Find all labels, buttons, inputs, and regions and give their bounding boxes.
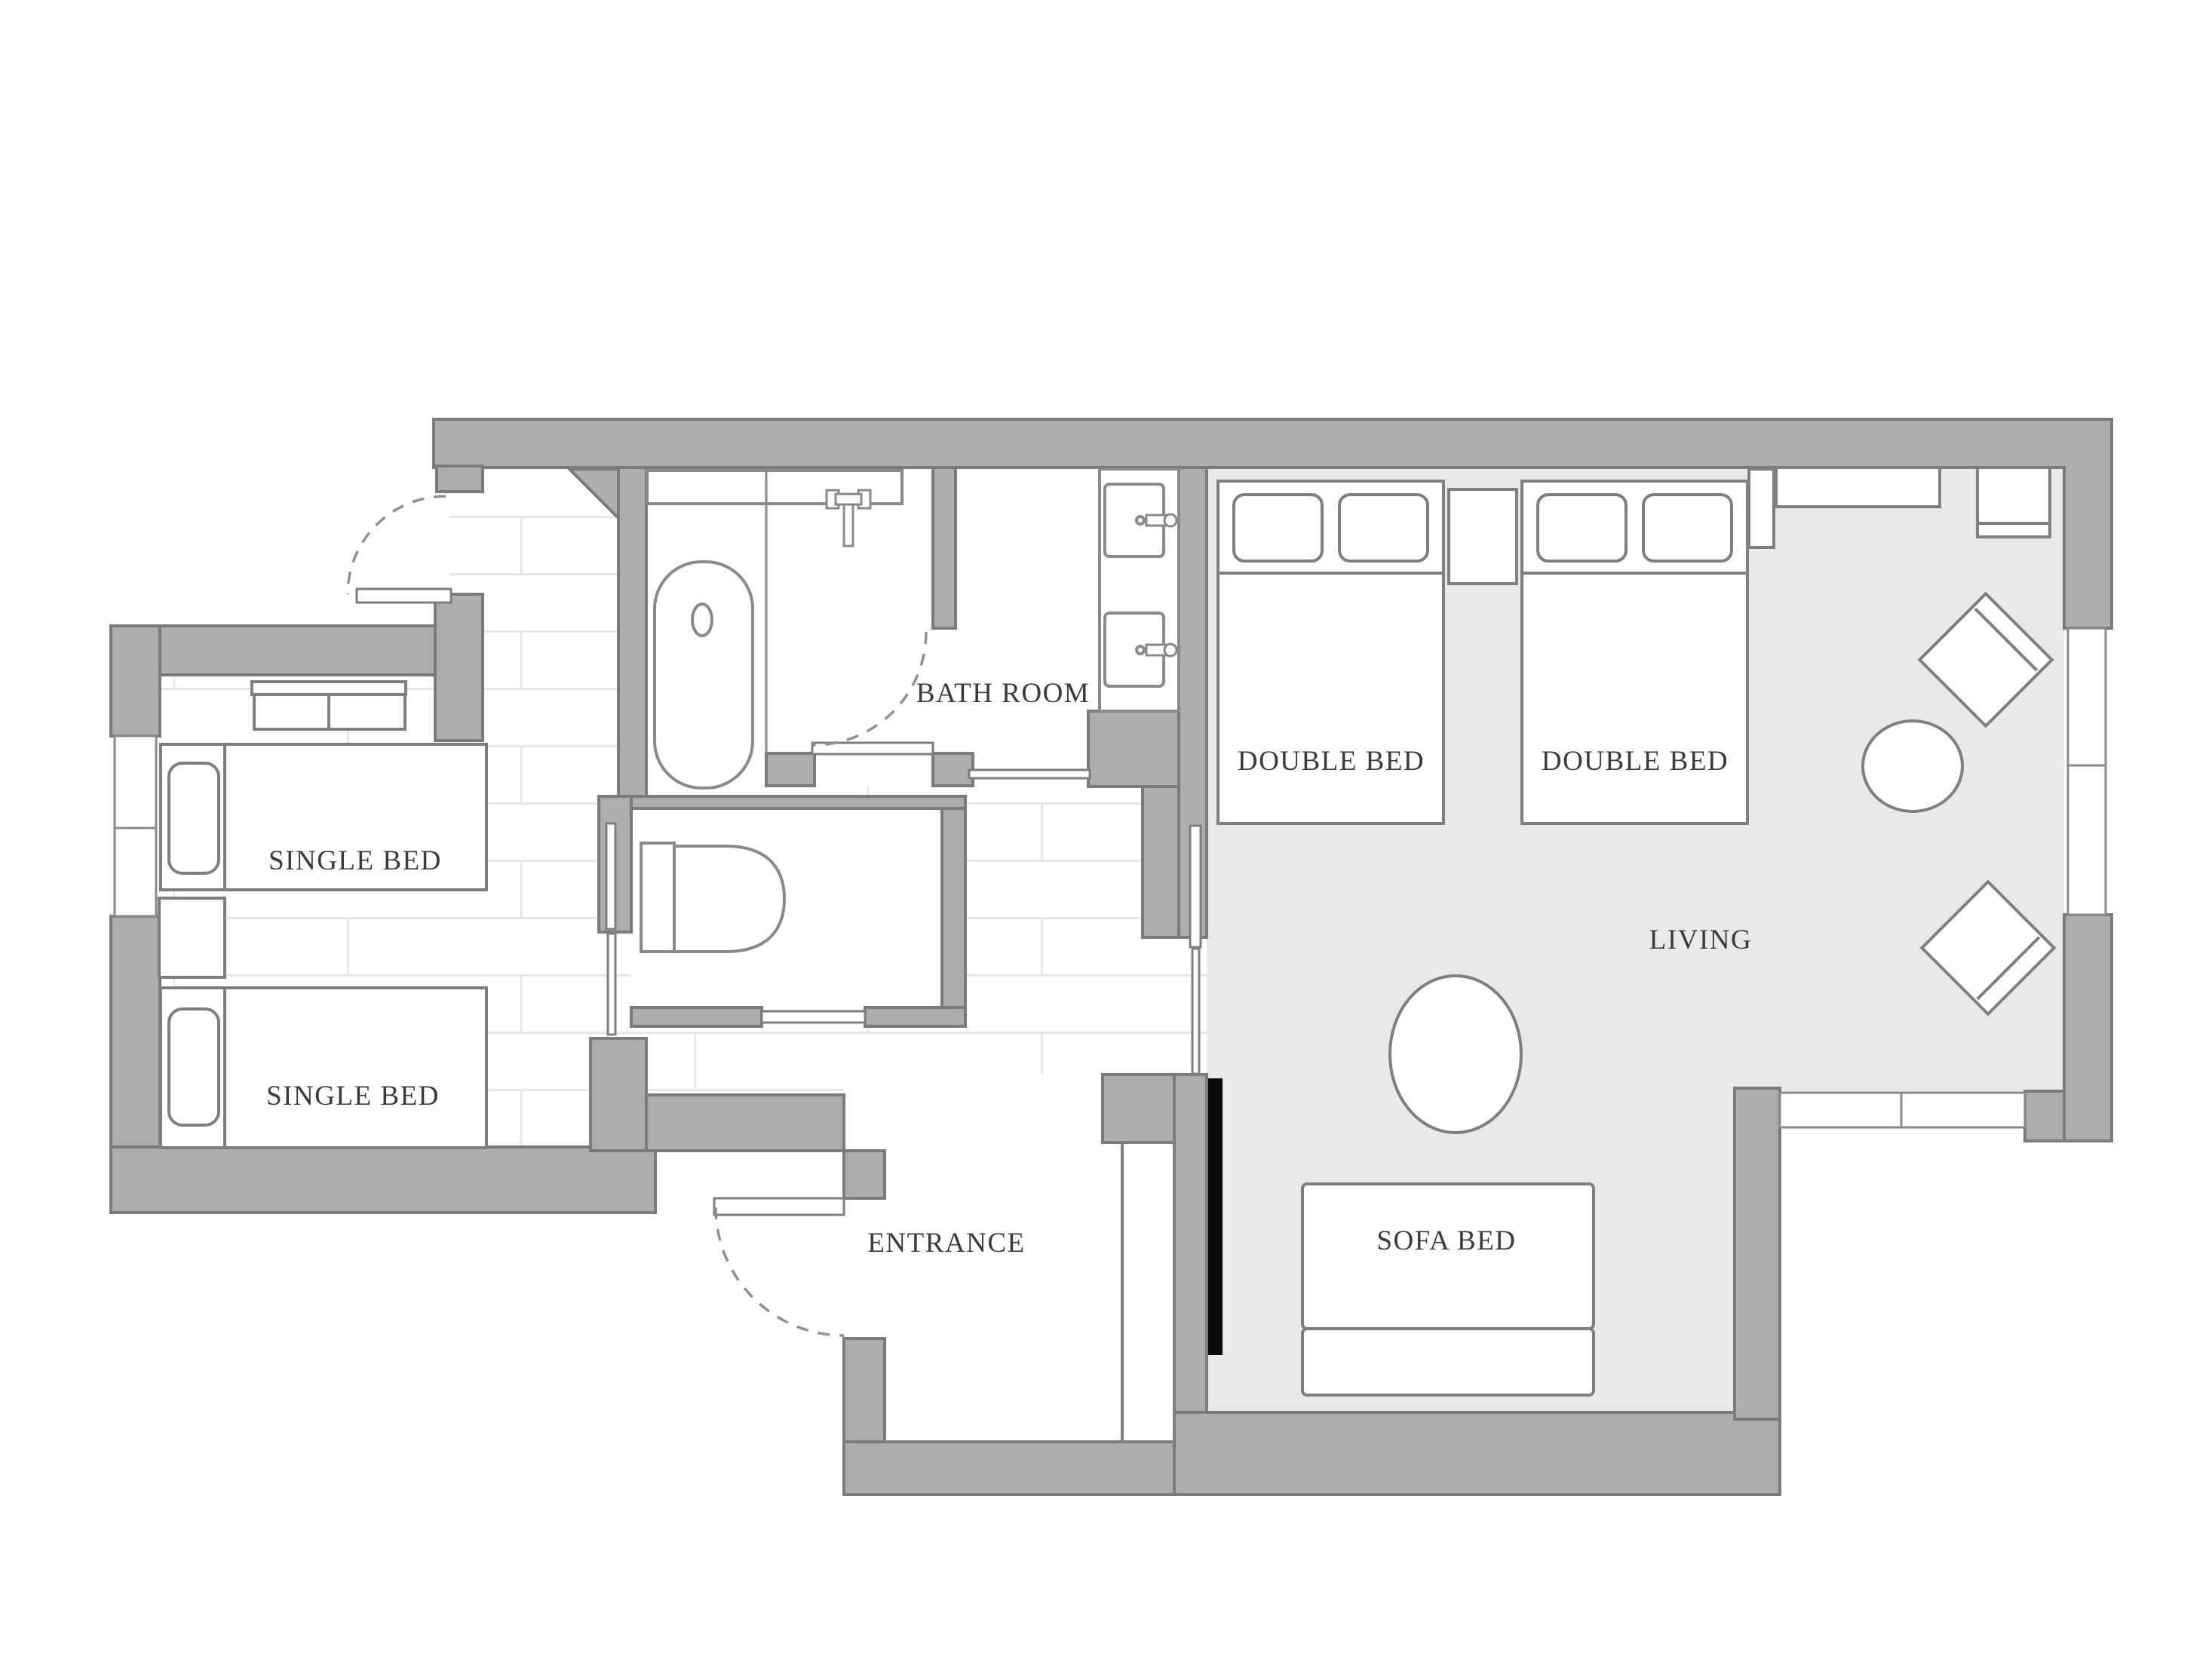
nightstand-right-of-bed [1749,469,1774,547]
wall-window-pier-right [2025,1091,2064,1141]
entry-door-leaf [357,589,451,603]
label-double-bed-1: DOUBLE BED [1238,746,1425,777]
floor-plan-page: SINGLE BED SINGLE BED BATH ROOM DOUBLE B… [0,0,2212,1659]
wall-right-lower-block [2064,915,2112,1141]
wall-bath-door-jamb-right [933,753,973,786]
headboard-console-top [252,682,406,695]
sink-1-drain [1137,517,1144,524]
floor-plan-drawing: SINGLE BED SINGLE BED BATH ROOM DOUBLE B… [0,0,2212,1659]
sink-2-faucet-knob [1164,644,1177,656]
chair-top-right [1977,468,2050,537]
bedroom-sliding-door [608,934,615,1035]
wall-entrance-door-jamb [844,1151,885,1198]
entry-door-arc [348,496,446,594]
label-single-bed-1: SINGLE BED [268,845,442,876]
wall-bath-door-jamb-left [766,753,815,786]
wall-closet-right [1174,1075,1207,1442]
wall-bedroom-bottom [111,1147,655,1213]
label-double-bed-2: DOUBLE BED [1542,746,1729,777]
double-bed-1-pillow-left [1234,495,1322,561]
living-sliding-door [1192,949,1199,1074]
shower-valve-stem [844,504,853,546]
wall-entrance-ne-block [1103,1075,1174,1142]
coffee-table-round [1390,976,1521,1133]
wall-entrance-bottom [844,1442,1207,1495]
entrance-door-leaf [714,1198,844,1215]
entrance-door-arc [716,1207,844,1335]
sink-1-faucet-knob [1164,514,1177,526]
wall-nook-right [1735,1088,1780,1419]
wall-shower-stub [933,468,956,628]
sofa-bed-seat [1302,1329,1594,1395]
bathroom-hall-sliding-door [969,770,1090,778]
window-bedroom-left [115,736,156,916]
window-living-right [2068,628,2106,915]
nightstand-between-singles [159,898,225,977]
nightstand-between-doubles [1449,489,1517,584]
wall-toilet-top [631,796,965,808]
sink-2-drain [1137,646,1144,654]
wall-vanity-bottom [1088,711,1179,787]
label-living: LIVING [1649,925,1752,955]
wall-nook-bottom [1174,1412,1780,1495]
sofa-bed-back [1302,1184,1594,1329]
living-sliding-door-pocket [1190,826,1201,947]
label-bath-room: BATH ROOM [916,678,1090,709]
toilet-sliding-door [762,1011,865,1023]
wall-toilet-bottom-right [865,1007,965,1026]
wall-entrance-left [844,1339,885,1442]
tv-panel [1208,1078,1223,1355]
bathtub-drain [692,604,712,636]
wall-bedroom-left-upper [111,626,160,736]
wall-bathroom-left [618,468,646,796]
wall-entry-jamb [437,466,483,492]
wall-living-left-column [1143,787,1179,937]
shower-valve-bar [836,494,861,504]
bedroom-sliding-door-pocket [606,823,615,929]
wall-hall-bottom [646,1095,844,1151]
double-bed-2-pillow-left [1538,495,1626,561]
double-bed-1-pillow-right [1339,495,1428,561]
label-sofa-bed: SOFA BED [1376,1225,1516,1256]
entrance-closet [1122,1142,1174,1442]
label-entrance: ENTRANCE [867,1228,1025,1259]
wall-toilet-right [942,808,965,1026]
wall-bedroom-corner [435,594,483,741]
wall-bedroom-door-jamb [591,1038,646,1151]
double-bed-2-pillow-right [1643,495,1732,561]
wall-toilet-bottom-left [631,1007,762,1026]
toilet-tank [641,843,674,952]
console-sideboard [1776,468,1940,507]
label-single-bed-2: SINGLE BED [266,1081,440,1112]
single-bed-1-pillow [169,763,219,873]
bathtub [655,562,753,788]
single-bed-2-pillow [169,1009,219,1125]
toilet-bowl [674,846,784,952]
side-table-round [1863,721,1962,811]
